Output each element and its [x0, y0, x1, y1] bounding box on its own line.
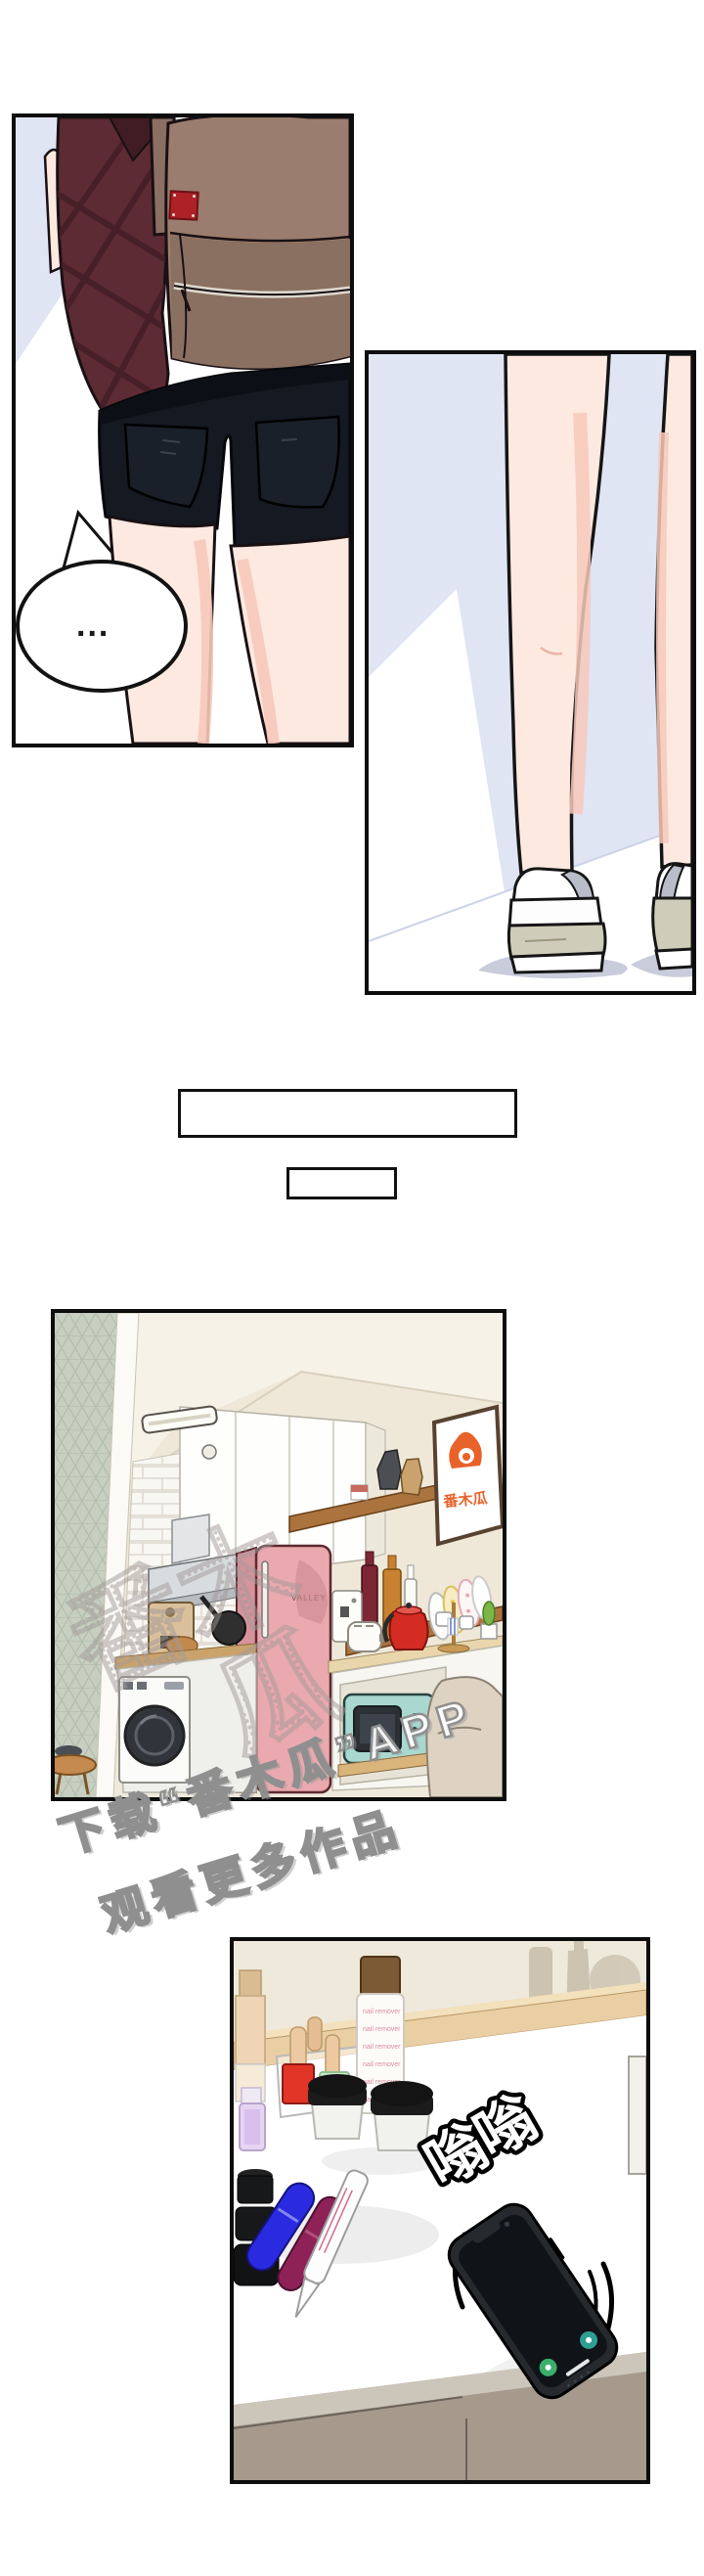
caption-box-1 — [178, 1089, 517, 1138]
panel-4-art: nail remover nail remover nail remover n… — [234, 1941, 646, 2480]
remover-cap — [361, 1957, 400, 1996]
edge-bottle — [629, 2056, 646, 2174]
cactus — [481, 1602, 497, 1639]
foundation-bottle — [236, 1996, 265, 2064]
panel-1-art: ... — [16, 117, 350, 744]
polish-cap — [290, 2027, 306, 2068]
ceiling-vent — [202, 1445, 216, 1459]
mug — [460, 1616, 473, 1629]
shorts-pocket-right — [256, 417, 339, 507]
red-patch — [169, 191, 198, 219]
sneaker-right — [653, 864, 692, 969]
toaster — [348, 1622, 384, 1651]
panel-2-art — [369, 354, 692, 991]
backpack-lower — [170, 235, 350, 369]
panel-2 — [365, 350, 696, 995]
caption-box-2 — [286, 1167, 397, 1199]
poster: 番木瓜 — [434, 1407, 503, 1544]
svg-text:nail remover: nail remover — [363, 2061, 401, 2068]
foundation-cap — [240, 1970, 261, 1996]
backpack — [151, 117, 350, 369]
panel-4: nail remover nail remover nail remover n… — [230, 1937, 650, 2484]
speech-bubble-text: ... — [76, 607, 110, 644]
svg-text:nail remover: nail remover — [363, 2009, 401, 2015]
svg-text:nail remover: nail remover — [363, 2044, 401, 2051]
comic-page: ... — [0, 0, 704, 2576]
sneaker-left — [508, 869, 605, 972]
panel-1: ... — [12, 113, 354, 747]
svg-text:nail remover: nail remover — [363, 2026, 401, 2033]
